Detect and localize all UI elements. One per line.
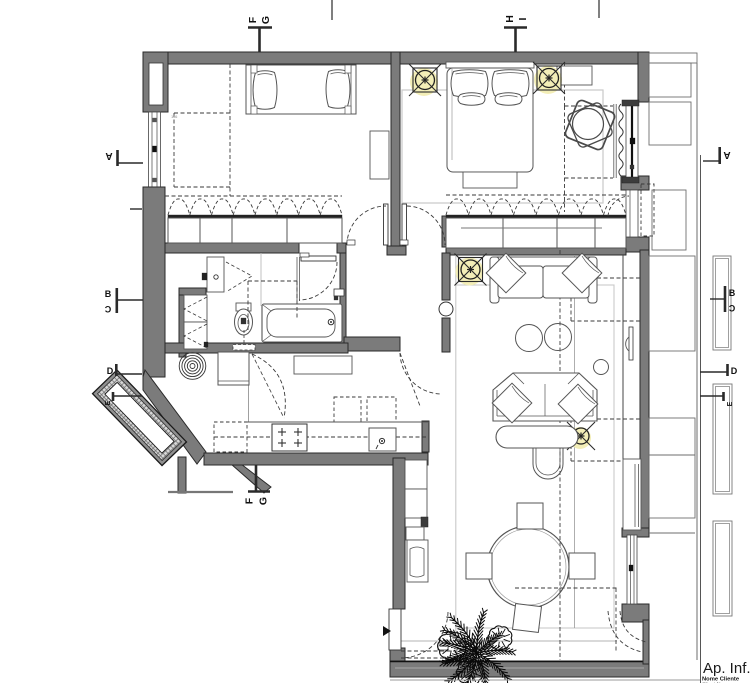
svg-text:A: A <box>723 149 730 160</box>
svg-text:B: B <box>729 288 736 298</box>
svg-text:D: D <box>731 366 738 376</box>
svg-text:C: C <box>104 304 111 314</box>
svg-text:Ap. Inf.1: Ap. Inf.1 <box>703 660 750 677</box>
svg-text:F: F <box>247 16 259 23</box>
svg-text:I: I <box>517 17 529 20</box>
svg-text:E: E <box>105 400 112 405</box>
svg-text:A: A <box>105 150 112 161</box>
svg-text:C: C <box>728 303 735 313</box>
svg-text:H: H <box>504 15 516 23</box>
svg-text:F: F <box>244 497 256 504</box>
svg-text:D: D <box>107 366 114 376</box>
svg-text:E: E <box>727 401 734 406</box>
svg-text:B: B <box>105 289 112 299</box>
svg-text:116: 116 <box>171 114 178 119</box>
svg-text:G: G <box>258 497 270 505</box>
svg-text:G: G <box>260 16 272 24</box>
